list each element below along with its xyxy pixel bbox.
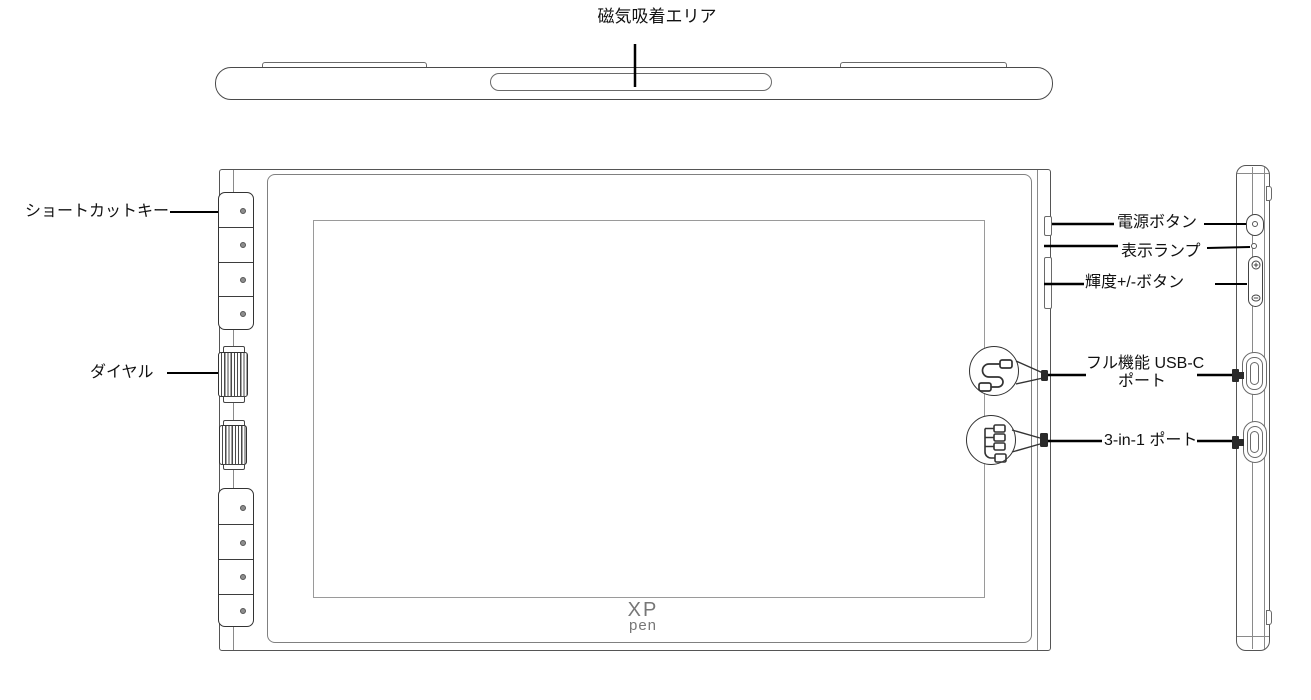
dial-1-bottom-cap <box>223 396 245 403</box>
shortcut-keys-label: ショートカットキー <box>25 203 169 221</box>
front-right-bevel-line <box>1037 170 1038 650</box>
device-diagram: 磁気吸着エリア XP pen <box>0 0 1311 700</box>
key-separator <box>219 262 253 263</box>
key-dot <box>240 608 246 614</box>
dial-label: ダイヤル <box>90 364 154 382</box>
key-dot <box>240 505 246 511</box>
display-screen <box>313 220 985 598</box>
power-button-label: 電源ボタン <box>1117 214 1197 232</box>
power-button-edge-bump <box>1044 216 1052 236</box>
power-indicator-icon <box>1252 221 1258 227</box>
side-3in1-port-slot <box>1250 431 1259 453</box>
brightness-up-icon <box>1251 260 1261 270</box>
usb-c-cable-callout-circle <box>969 346 1019 396</box>
key-separator <box>219 559 253 560</box>
brightness-buttons-label: 輝度+/-ボタン <box>1085 274 1184 292</box>
three-in-one-cable-icon <box>967 416 1017 466</box>
xppen-logo: XP pen <box>593 601 693 633</box>
brightness-down-icon <box>1251 294 1261 302</box>
side-top-line <box>1237 173 1269 174</box>
three-in-one-port-label: 3-in-1 ポート <box>1104 432 1197 450</box>
brightness-button-edge-bump <box>1044 257 1052 309</box>
side-indicator-lamp <box>1251 243 1257 249</box>
dial-2-bottom-cap <box>223 464 245 470</box>
side-bump-top <box>1266 186 1272 201</box>
dial-1 <box>218 352 248 397</box>
shortcut-key-group-bottom <box>218 488 254 627</box>
dial-2 <box>219 425 247 465</box>
key-dot <box>240 277 246 283</box>
key-dot <box>240 242 246 248</box>
side-usb-c-port-slot <box>1250 362 1259 385</box>
key-dot <box>240 208 246 214</box>
key-dot <box>240 574 246 580</box>
shortcut-key-group-top <box>218 192 254 330</box>
key-dot <box>240 540 246 546</box>
xppen-logo-bottom: pen <box>593 619 693 633</box>
usb-c-port-label: フル機能 USB-C ポート <box>1086 355 1198 392</box>
usb-c-port-label-line1: フル機能 USB-C <box>1086 355 1198 373</box>
usb-c-cable-icon <box>970 347 1020 397</box>
magnetic-attachment-slot <box>490 73 772 91</box>
three-in-one-cable-callout-circle <box>966 415 1016 465</box>
side-inner-line-right <box>1264 167 1265 649</box>
key-separator <box>219 524 253 525</box>
side-bottom-line <box>1237 636 1269 637</box>
key-dot <box>240 311 246 317</box>
side-power-button <box>1246 214 1264 236</box>
indicator-lamp-label: 表示ランプ <box>1121 243 1201 261</box>
side-brightness-rocker <box>1248 256 1263 307</box>
usb-c-port-label-line2: ポート <box>1086 373 1198 391</box>
magnetic-area-label: 磁気吸着エリア <box>590 7 724 27</box>
key-separator <box>219 594 253 595</box>
key-separator <box>219 227 253 228</box>
side-bump-bottom <box>1266 610 1272 625</box>
key-separator <box>219 296 253 297</box>
side-inner-line-left <box>1252 167 1253 649</box>
